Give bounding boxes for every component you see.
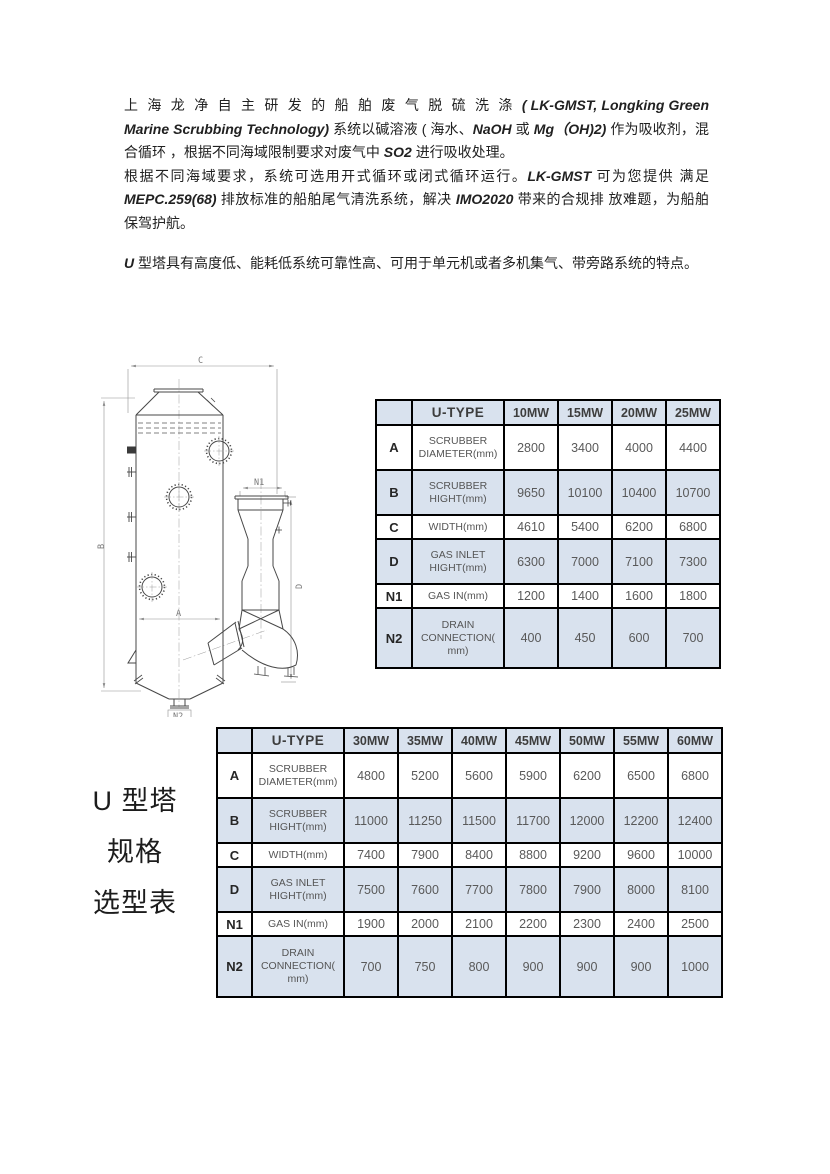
- value-cell: 600: [612, 608, 666, 668]
- row-key-cell: D: [217, 867, 252, 912]
- value-cell: 11700: [506, 798, 560, 843]
- value-cell: 7900: [398, 843, 452, 867]
- row-name-cell: DRAINCONNECTION(mm): [412, 608, 504, 668]
- row-name-cell: SCRUBBERDIAMETER(mm): [412, 425, 504, 470]
- value-cell: 7000: [558, 539, 612, 584]
- row-key-cell: C: [376, 515, 412, 539]
- table-row: DGAS INLETHIGHT(mm)750076007700780079008…: [217, 867, 722, 912]
- value-cell: 700: [344, 936, 398, 997]
- table-row: N1GAS IN(mm)1900200021002200230024002500: [217, 912, 722, 936]
- value-cell: 900: [506, 936, 560, 997]
- value-cell: 2500: [668, 912, 722, 936]
- value-cell: 6800: [666, 515, 720, 539]
- value-cell: 11000: [344, 798, 398, 843]
- dim-label-a: A: [176, 609, 181, 619]
- table-type-header: U-TYPE: [412, 400, 504, 425]
- value-cell: 5200: [398, 753, 452, 798]
- row-name-cell: GAS IN(mm): [412, 584, 504, 608]
- manhole-flange: [137, 572, 167, 602]
- value-cell: 1600: [612, 584, 666, 608]
- latin-text-segment: SO2: [384, 144, 416, 160]
- row-name-line: mm): [414, 645, 502, 658]
- value-cell: 7700: [452, 867, 506, 912]
- value-cell: 4400: [666, 425, 720, 470]
- row-name-line: SCRUBBER: [254, 763, 342, 776]
- value-cell: 4000: [612, 425, 666, 470]
- value-cell: 11500: [452, 798, 506, 843]
- row-name-line: GAS IN(mm): [414, 590, 502, 603]
- value-cell: 8800: [506, 843, 560, 867]
- latin-text-segment: LK-GMST: [527, 168, 596, 184]
- table-row: N2DRAINCONNECTION(mm)400450600700: [376, 608, 720, 668]
- row-name-line: SCRUBBER: [414, 435, 502, 448]
- venturi-inlet-duct: [208, 496, 298, 677]
- value-cell: 800: [452, 936, 506, 997]
- column-header-cell: 60MW: [668, 728, 722, 753]
- value-cell: 750: [398, 936, 452, 997]
- value-cell: 5900: [506, 753, 560, 798]
- spec-table-10-25mw: U-TYPE10MW15MW20MW25MWASCRUBBERDIAMETER(…: [375, 399, 721, 669]
- row-name-cell: WIDTH(mm): [252, 843, 344, 867]
- row-key-cell: N1: [217, 912, 252, 936]
- dim-label-d: D: [295, 584, 305, 589]
- paragraph-u-tower-features: U 型塔具有高度低、能耗低系统可靠性高、可用于单元机或者多机集气、带旁路系统的特…: [124, 252, 709, 276]
- value-cell: 7600: [398, 867, 452, 912]
- paragraph-compliance: 根据不同海域要求，系统可选用开式循环或闭式循环运行。LK-GMST 可为您提供 …: [124, 165, 709, 236]
- spec-table-30-60mw: U-TYPE30MW35MW40MW45MW50MW55MW60MWASCRUB…: [216, 727, 723, 998]
- row-name-line: GAS INLET: [254, 877, 342, 890]
- value-cell: 10100: [558, 470, 612, 515]
- chinese-text-segment: 或: [516, 121, 534, 137]
- value-cell: 2100: [452, 912, 506, 936]
- row-name-line: HIGHT(mm): [254, 821, 342, 834]
- value-cell: 9650: [504, 470, 558, 515]
- value-cell: 2400: [614, 912, 668, 936]
- row-name-cell: GAS INLETHIGHT(mm): [412, 539, 504, 584]
- inclined-duct: [208, 621, 244, 665]
- row-name-line: mm): [254, 973, 342, 986]
- title-line: 选型表: [74, 878, 196, 929]
- value-cell: 5600: [452, 753, 506, 798]
- table-corner-cell: [217, 728, 252, 753]
- selection-table-title: U 型塔 规格 选型表: [74, 776, 196, 929]
- dim-label-b: B: [97, 544, 107, 549]
- row-key-cell: N1: [376, 584, 412, 608]
- chinese-text-segment: 上 海 龙 净 自 主 研 发 的 船 舶 废 气 脱 硫 洗 涤: [124, 97, 522, 113]
- row-name-cell: WIDTH(mm): [412, 515, 504, 539]
- value-cell: 7300: [666, 539, 720, 584]
- row-name-line: CONNECTION(: [414, 632, 502, 645]
- table-row: ASCRUBBERDIAMETER(mm)2800340040004400: [376, 425, 720, 470]
- row-name-line: WIDTH(mm): [254, 849, 342, 862]
- value-cell: 8100: [668, 867, 722, 912]
- row-name-line: WIDTH(mm): [414, 521, 502, 534]
- value-cell: 4800: [344, 753, 398, 798]
- elbow-bottom-edge: [242, 650, 296, 668]
- scrubber-technical-drawing: C B A D N1 N2: [95, 347, 330, 717]
- column-header-cell: 35MW: [398, 728, 452, 753]
- row-key-cell: A: [376, 425, 412, 470]
- table-row: ASCRUBBERDIAMETER(mm)4800520056005900620…: [217, 753, 722, 798]
- value-cell: 1400: [558, 584, 612, 608]
- row-key-cell: N2: [217, 936, 252, 997]
- value-cell: 11250: [398, 798, 452, 843]
- table-header-row: U-TYPE10MW15MW20MW25MW: [376, 400, 720, 425]
- value-cell: 12000: [560, 798, 614, 843]
- row-name-cell: SCRUBBERHIGHT(mm): [252, 798, 344, 843]
- title-line: U 型塔: [74, 776, 196, 827]
- value-cell: 7100: [612, 539, 666, 584]
- value-cell: 10400: [612, 470, 666, 515]
- value-cell: 1200: [504, 584, 558, 608]
- value-cell: 6800: [668, 753, 722, 798]
- row-name-cell: GAS INLETHIGHT(mm): [252, 867, 344, 912]
- column-header-cell: 10MW: [504, 400, 558, 425]
- dimension-lines: [101, 366, 296, 717]
- row-key-cell: A: [217, 753, 252, 798]
- elbow-outer-edge: [283, 629, 297, 665]
- intro-text: 上 海 龙 净 自 主 研 发 的 船 舶 废 气 脱 硫 洗 涤 ( LK-G…: [124, 94, 709, 276]
- chinese-text-segment: 可为您提供 满足: [597, 168, 709, 184]
- chinese-text-segment: 根据不同海域要求，系统可选用开式循环或闭式循环运行。: [124, 168, 527, 184]
- column-header-cell: 30MW: [344, 728, 398, 753]
- value-cell: 2300: [560, 912, 614, 936]
- row-name-line: HIGHT(mm): [414, 493, 502, 506]
- manhole-flange: [204, 436, 234, 466]
- row-name-cell: SCRUBBERDIAMETER(mm): [252, 753, 344, 798]
- table-header-row: U-TYPE30MW35MW40MW45MW50MW55MW60MW: [217, 728, 722, 753]
- dim-label-c: C: [198, 356, 203, 366]
- row-name-line: SCRUBBER: [254, 808, 342, 821]
- column-header-cell: 45MW: [506, 728, 560, 753]
- value-cell: 7500: [344, 867, 398, 912]
- title-line: 规格: [74, 827, 196, 878]
- dim-label-n1: N1: [254, 478, 264, 488]
- row-key-cell: N2: [376, 608, 412, 668]
- column-header-cell: 40MW: [452, 728, 506, 753]
- column-header-cell: 25MW: [666, 400, 720, 425]
- value-cell: 6200: [612, 515, 666, 539]
- column-header-cell: 15MW: [558, 400, 612, 425]
- row-name-line: HIGHT(mm): [254, 890, 342, 903]
- row-name-line: GAS INLET: [414, 549, 502, 562]
- value-cell: 6200: [560, 753, 614, 798]
- value-cell: 400: [504, 608, 558, 668]
- value-cell: 2000: [398, 912, 452, 936]
- value-cell: 10000: [668, 843, 722, 867]
- latin-text-segment: U: [124, 255, 138, 271]
- latin-text-segment: MEPC.259(68): [124, 191, 221, 207]
- value-cell: 8000: [614, 867, 668, 912]
- value-cell: 10700: [666, 470, 720, 515]
- latin-text-segment: NaOH: [473, 121, 516, 137]
- paragraph-system-description: 上 海 龙 净 自 主 研 发 的 船 舶 废 气 脱 硫 洗 涤 ( LK-G…: [124, 94, 709, 165]
- value-cell: 700: [666, 608, 720, 668]
- column-header-cell: 20MW: [612, 400, 666, 425]
- row-name-line: SCRUBBER: [414, 480, 502, 493]
- chinese-text-segment: 系统以碱溶液 ( 海水、: [333, 121, 473, 137]
- value-cell: 7900: [560, 867, 614, 912]
- manhole-flange: [164, 482, 194, 512]
- scrubber-tower-outline: [128, 389, 225, 708]
- row-name-cell: DRAINCONNECTION(mm): [252, 936, 344, 997]
- row-key-cell: D: [376, 539, 412, 584]
- value-cell: 7400: [344, 843, 398, 867]
- table-row: CWIDTH(mm)74007900840088009200960010000: [217, 843, 722, 867]
- document-page: 上 海 龙 净 自 主 研 发 的 船 舶 废 气 脱 硫 洗 涤 ( LK-G…: [0, 0, 830, 1174]
- value-cell: 2800: [504, 425, 558, 470]
- dim-label-n2: N2: [173, 712, 183, 717]
- row-name-line: DIAMETER(mm): [254, 776, 342, 789]
- value-cell: 12400: [668, 798, 722, 843]
- row-name-cell: SCRUBBERHIGHT(mm): [412, 470, 504, 515]
- side-nozzles: [127, 447, 136, 563]
- latin-text-segment: Mg（OH)2): [534, 121, 611, 137]
- table-row: CWIDTH(mm)4610540062006800: [376, 515, 720, 539]
- row-name-line: DIAMETER(mm): [414, 448, 502, 461]
- row-key-cell: B: [217, 798, 252, 843]
- value-cell: 1000: [668, 936, 722, 997]
- row-name-line: GAS IN(mm): [254, 918, 342, 931]
- value-cell: 7800: [506, 867, 560, 912]
- manhole-flanges: [137, 436, 234, 602]
- value-cell: 450: [558, 608, 612, 668]
- table-row: N1GAS IN(mm)1200140016001800: [376, 584, 720, 608]
- value-cell: 2200: [506, 912, 560, 936]
- value-cell: 6500: [614, 753, 668, 798]
- row-key-cell: B: [376, 470, 412, 515]
- value-cell: 8400: [452, 843, 506, 867]
- chinese-text-segment: 排放标准的船舶尾气清洗系统，解决: [221, 191, 456, 207]
- chinese-text-segment: 型塔具有高度低、能耗低系统可靠性高、可用于单元机或者多机集气、带旁路系统的特点。: [138, 255, 698, 271]
- table-row: DGAS INLETHIGHT(mm)6300700071007300: [376, 539, 720, 584]
- value-cell: 6300: [504, 539, 558, 584]
- row-name-line: CONNECTION(: [254, 960, 342, 973]
- value-cell: 9600: [614, 843, 668, 867]
- value-cell: 5400: [558, 515, 612, 539]
- value-cell: 4610: [504, 515, 558, 539]
- row-name-line: HIGHT(mm): [414, 562, 502, 575]
- column-header-cell: 55MW: [614, 728, 668, 753]
- table-row: N2DRAINCONNECTION(mm)7007508009009009001…: [217, 936, 722, 997]
- value-cell: 900: [614, 936, 668, 997]
- value-cell: 1900: [344, 912, 398, 936]
- column-header-cell: 50MW: [560, 728, 614, 753]
- value-cell: 1800: [666, 584, 720, 608]
- row-key-cell: C: [217, 843, 252, 867]
- row-name-cell: GAS IN(mm): [252, 912, 344, 936]
- demister-lines: [138, 423, 221, 433]
- latin-text-segment: IMO2020: [456, 191, 518, 207]
- row-name-line: DRAIN: [254, 947, 342, 960]
- table-corner-cell: [376, 400, 412, 425]
- chinese-text-segment: 进行吸收处理。: [416, 144, 514, 160]
- table-type-header: U-TYPE: [252, 728, 344, 753]
- value-cell: 12200: [614, 798, 668, 843]
- row-name-line: DRAIN: [414, 619, 502, 632]
- value-cell: 9200: [560, 843, 614, 867]
- table-row: BSCRUBBERHIGHT(mm)1100011250115001170012…: [217, 798, 722, 843]
- value-cell: 3400: [558, 425, 612, 470]
- table-row: BSCRUBBERHIGHT(mm)9650101001040010700: [376, 470, 720, 515]
- value-cell: 900: [560, 936, 614, 997]
